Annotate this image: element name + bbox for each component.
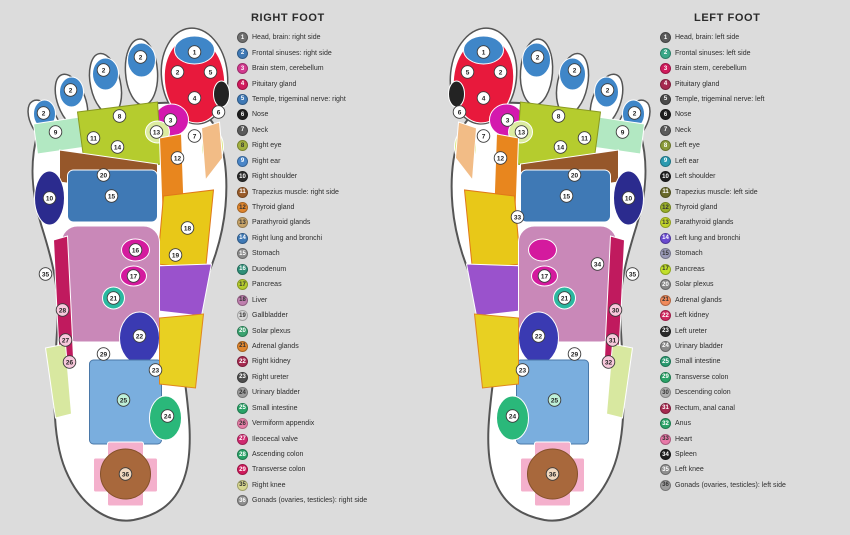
legend-label: Left knee bbox=[671, 466, 704, 473]
foot-marker: 2 bbox=[494, 66, 507, 79]
legend-item: 14 Right lung and bronchi bbox=[237, 231, 437, 246]
legend-item: 21 Adrenal glands bbox=[237, 339, 437, 354]
legend-item: 18 Liver bbox=[237, 292, 437, 307]
legend-swatch: 4 bbox=[660, 79, 671, 90]
legend-swatch: 12 bbox=[237, 202, 248, 213]
legend-item: 29 Transverse colon bbox=[660, 370, 848, 385]
svg-text:25: 25 bbox=[551, 397, 559, 404]
legend-swatch: 5 bbox=[660, 94, 671, 105]
svg-text:16: 16 bbox=[132, 247, 140, 254]
legend-item: 34 Spleen bbox=[660, 447, 848, 462]
svg-text:2: 2 bbox=[573, 67, 577, 74]
foot-marker: 22 bbox=[532, 330, 545, 343]
legend-label: Transverse colon bbox=[248, 466, 305, 473]
legend-swatch: 6 bbox=[660, 109, 671, 120]
legend-label: Solar plexus bbox=[248, 328, 291, 335]
svg-text:14: 14 bbox=[557, 144, 565, 151]
legend-swatch: 30 bbox=[660, 387, 671, 398]
legend-item: 8 Right eye bbox=[237, 138, 437, 153]
legend-label: Gonads (ovaries, testicles): right side bbox=[248, 497, 367, 504]
legend-item: 21 Adrenal glands bbox=[660, 292, 848, 307]
legend-item: 33 Heart bbox=[660, 431, 848, 446]
svg-text:24: 24 bbox=[509, 413, 517, 420]
legend-label: Thyroid gland bbox=[671, 204, 717, 211]
foot-marker: 15 bbox=[560, 190, 573, 203]
legend-swatch: 1 bbox=[660, 32, 671, 43]
legend-label: Frontal sinuses: left side bbox=[671, 50, 750, 57]
legend-swatch: 6 bbox=[237, 109, 248, 120]
legend-swatch: 5 bbox=[237, 94, 248, 105]
legend-swatch: 15 bbox=[660, 248, 671, 259]
svg-text:11: 11 bbox=[90, 135, 97, 142]
left-legend-rows: 1 Head, brain: left side 2 Frontal sinus… bbox=[660, 30, 848, 493]
foot-marker: 36 bbox=[546, 468, 559, 481]
legend-swatch: 36 bbox=[660, 480, 671, 491]
legend-label: Right eye bbox=[248, 142, 282, 149]
legend-item: 4 Pituitary gland bbox=[237, 76, 437, 91]
legend-item: 19 Gallbladder bbox=[237, 308, 437, 323]
legend-label: Stomach bbox=[248, 250, 280, 257]
legend-item: 20 Solar plexus bbox=[660, 277, 848, 292]
svg-text:23: 23 bbox=[152, 367, 160, 374]
legend-item: 3 Brain stem, cerebellum bbox=[237, 61, 437, 76]
foot-marker: 12 bbox=[171, 152, 184, 165]
legend-label: Transverse colon bbox=[671, 374, 728, 381]
svg-text:11: 11 bbox=[581, 135, 588, 142]
svg-text:12: 12 bbox=[497, 155, 505, 162]
legend-swatch: 24 bbox=[237, 387, 248, 398]
legend-swatch: 21 bbox=[660, 295, 671, 306]
svg-text:24: 24 bbox=[164, 413, 172, 420]
legend-label: Anus bbox=[671, 420, 691, 427]
legend-label: Brain stem, cerebellum bbox=[248, 65, 324, 72]
foot-marker: 6 bbox=[453, 106, 466, 119]
foot-marker: 36 bbox=[119, 468, 132, 481]
legend-swatch: 21 bbox=[237, 341, 248, 352]
legend-label: Pituitary gland bbox=[671, 81, 719, 88]
legend-swatch: 35 bbox=[660, 464, 671, 475]
legend-swatch: 33 bbox=[660, 434, 671, 445]
legend-swatch: 13 bbox=[237, 217, 248, 228]
legend-swatch: 29 bbox=[660, 372, 671, 383]
legend-swatch: 22 bbox=[237, 356, 248, 367]
svg-text:30: 30 bbox=[612, 307, 620, 314]
legend-item: 23 Right ureter bbox=[237, 370, 437, 385]
svg-text:8: 8 bbox=[557, 113, 561, 120]
legend-item: 25 Small intestine bbox=[660, 354, 848, 369]
legend-swatch: 9 bbox=[660, 156, 671, 167]
foot-zone bbox=[529, 239, 557, 261]
legend-swatch: 20 bbox=[660, 279, 671, 290]
svg-text:36: 36 bbox=[122, 471, 130, 478]
legend-swatch: 10 bbox=[237, 171, 248, 182]
foot-marker: 10 bbox=[43, 192, 56, 205]
legend-label: Trapezius muscle: right side bbox=[248, 189, 339, 196]
legend-label: Trapezius muscle: left side bbox=[671, 189, 758, 196]
svg-text:26: 26 bbox=[66, 359, 74, 366]
foot-marker: 5 bbox=[204, 66, 217, 79]
svg-text:4: 4 bbox=[482, 95, 486, 102]
legend-label: Stomach bbox=[671, 250, 703, 257]
svg-text:17: 17 bbox=[541, 273, 549, 280]
svg-text:9: 9 bbox=[54, 129, 58, 136]
foot-marker: 14 bbox=[554, 141, 567, 154]
legend-label: Spleen bbox=[671, 451, 697, 458]
legend-label: Small intestine bbox=[671, 358, 721, 365]
svg-text:9: 9 bbox=[621, 129, 625, 136]
foot-marker: 24 bbox=[506, 410, 519, 423]
foot-zone bbox=[465, 190, 521, 270]
legend-label: Solar plexus bbox=[671, 281, 714, 288]
svg-text:36: 36 bbox=[549, 471, 557, 478]
svg-text:2: 2 bbox=[536, 54, 540, 61]
legend-item: 35 Left knee bbox=[660, 462, 848, 477]
foot-marker: 31 bbox=[606, 334, 619, 347]
legend-swatch: 11 bbox=[237, 187, 248, 198]
foot-marker: 21 bbox=[558, 292, 571, 305]
svg-text:15: 15 bbox=[563, 193, 571, 200]
legend-item: 11 Trapezius muscle: right side bbox=[237, 184, 437, 199]
svg-text:3: 3 bbox=[169, 117, 173, 124]
foot-marker: 17 bbox=[127, 270, 140, 283]
foot-marker: 2 bbox=[568, 64, 581, 77]
legend-swatch: 25 bbox=[660, 356, 671, 367]
foot-marker: 1 bbox=[477, 46, 490, 59]
legend-item: 24 Urinary bladder bbox=[237, 385, 437, 400]
foot-marker: 26 bbox=[63, 356, 76, 369]
legend-label: Descending colon bbox=[671, 389, 731, 396]
svg-text:10: 10 bbox=[46, 195, 54, 202]
legend-label: Adrenal glands bbox=[671, 297, 722, 304]
legend-label: Gallbladder bbox=[248, 312, 288, 319]
svg-text:5: 5 bbox=[466, 69, 470, 76]
foot-marker: 14 bbox=[111, 141, 124, 154]
foot-marker: 6 bbox=[212, 106, 225, 119]
foot-marker: 23 bbox=[149, 364, 162, 377]
svg-text:17: 17 bbox=[130, 273, 138, 280]
legend-swatch: 23 bbox=[237, 372, 248, 383]
legend-swatch: 32 bbox=[660, 418, 671, 429]
legend-swatch: 13 bbox=[660, 217, 671, 228]
foot-marker: 3 bbox=[164, 114, 177, 127]
svg-text:23: 23 bbox=[519, 367, 527, 374]
foot-marker: 2 bbox=[601, 84, 614, 97]
legend-label: Liver bbox=[248, 297, 267, 304]
svg-text:2: 2 bbox=[69, 87, 73, 94]
svg-text:14: 14 bbox=[114, 144, 122, 151]
right-legend-rows: 1 Head, brain: right side 2 Frontal sinu… bbox=[237, 30, 437, 509]
legend-item: 9 Left ear bbox=[660, 154, 848, 169]
svg-text:27: 27 bbox=[62, 337, 70, 344]
svg-text:1: 1 bbox=[193, 49, 197, 56]
legend-label: Right lung and bronchi bbox=[248, 235, 322, 242]
legend-swatch: 8 bbox=[237, 140, 248, 151]
foot-marker: 29 bbox=[568, 348, 581, 361]
legend-item: 2 Frontal sinuses: left side bbox=[660, 45, 848, 60]
legend-label: Pancreas bbox=[671, 266, 705, 273]
right-foot-title: RIGHT FOOT bbox=[237, 12, 437, 24]
svg-text:35: 35 bbox=[42, 271, 50, 278]
left-foot-diagram: 1254367222289111312142010151733342122232… bbox=[444, 12, 672, 524]
foot-marker: 8 bbox=[552, 110, 565, 123]
foot-marker: 2 bbox=[37, 107, 50, 120]
svg-text:2: 2 bbox=[42, 110, 46, 117]
legend-label: Nose bbox=[671, 111, 691, 118]
legend-item: 23 Left ureter bbox=[660, 323, 848, 338]
legend-item: 32 Anus bbox=[660, 416, 848, 431]
legend-item: 28 Ascending colon bbox=[237, 447, 437, 462]
svg-text:18: 18 bbox=[184, 225, 192, 232]
legend-item: 7 Neck bbox=[237, 123, 437, 138]
svg-text:21: 21 bbox=[110, 295, 118, 302]
legend-swatch: 3 bbox=[237, 63, 248, 74]
legend-swatch: 2 bbox=[237, 48, 248, 59]
legend-label: Left ear bbox=[671, 158, 699, 165]
svg-text:21: 21 bbox=[561, 295, 569, 302]
svg-text:28: 28 bbox=[59, 307, 67, 314]
legend-item: 31 Rectum, anal canal bbox=[660, 401, 848, 416]
foot-marker: 2 bbox=[97, 64, 110, 77]
left-foot-title: LEFT FOOT bbox=[660, 12, 848, 24]
foot-marker: 20 bbox=[568, 169, 581, 182]
legend-label: Neck bbox=[671, 127, 691, 134]
foot-marker: 10 bbox=[622, 192, 635, 205]
foot-marker: 4 bbox=[477, 92, 490, 105]
foot-zone bbox=[475, 314, 519, 388]
foot-marker: 20 bbox=[97, 169, 110, 182]
foot-marker: 15 bbox=[105, 190, 118, 203]
legend-label: Head, brain: left side bbox=[671, 34, 739, 41]
legend-swatch: 10 bbox=[660, 171, 671, 182]
legend-label: Small intestine bbox=[248, 405, 298, 412]
foot-marker: 13 bbox=[150, 126, 163, 139]
legend-item: 10 Left shoulder bbox=[660, 169, 848, 184]
foot-marker: 11 bbox=[87, 132, 100, 145]
legend-swatch: 1 bbox=[237, 32, 248, 43]
foot-marker: 34 bbox=[591, 258, 604, 271]
legend-item: 29 Transverse colon bbox=[237, 462, 437, 477]
legend-label: Left lung and bronchi bbox=[671, 235, 740, 242]
foot-marker: 17 bbox=[538, 270, 551, 283]
legend-item: 17 Pancreas bbox=[660, 262, 848, 277]
svg-text:2: 2 bbox=[102, 67, 106, 74]
svg-text:19: 19 bbox=[172, 252, 180, 259]
legend-label: Thyroid gland bbox=[248, 204, 294, 211]
legend-label: Right shoulder bbox=[248, 173, 297, 180]
legend-swatch: 29 bbox=[237, 464, 248, 475]
svg-text:1: 1 bbox=[482, 49, 486, 56]
legend-label: Left eye bbox=[671, 142, 700, 149]
legend-item: 13 Parathyroid glands bbox=[660, 215, 848, 230]
legend-swatch: 25 bbox=[237, 403, 248, 414]
legend-label: Left shoulder bbox=[671, 173, 715, 180]
legend-item: 2 Frontal sinuses: right side bbox=[237, 45, 437, 60]
foot-marker: 18 bbox=[181, 222, 194, 235]
legend-item: 11 Trapezius muscle: left side bbox=[660, 184, 848, 199]
svg-text:2: 2 bbox=[606, 87, 610, 94]
legend-item: 22 Left kidney bbox=[660, 308, 848, 323]
legend-item: 5 Temple, trigeminal nerve: left bbox=[660, 92, 848, 107]
svg-text:6: 6 bbox=[458, 109, 462, 116]
svg-text:31: 31 bbox=[609, 337, 617, 344]
legend-swatch: 27 bbox=[237, 434, 248, 445]
foot-marker: 7 bbox=[477, 130, 490, 143]
legend-swatch: 26 bbox=[237, 418, 248, 429]
legend-swatch: 9 bbox=[237, 156, 248, 167]
svg-text:7: 7 bbox=[482, 133, 486, 140]
legend-label: Heart bbox=[671, 436, 692, 443]
legend-label: Duodenum bbox=[248, 266, 286, 273]
svg-text:29: 29 bbox=[100, 351, 108, 358]
legend-label: Neck bbox=[248, 127, 268, 134]
legend-item: 7 Neck bbox=[660, 123, 848, 138]
foot-marker: 30 bbox=[609, 304, 622, 317]
foot-marker: 2 bbox=[531, 51, 544, 64]
foot-marker: 22 bbox=[133, 330, 146, 343]
foot-marker: 5 bbox=[461, 66, 474, 79]
legend-item: 27 Ileocecal valve bbox=[237, 431, 437, 446]
legend-label: Right kidney bbox=[248, 358, 291, 365]
svg-text:2: 2 bbox=[176, 69, 180, 76]
foot-marker: 1 bbox=[188, 46, 201, 59]
svg-text:4: 4 bbox=[193, 95, 197, 102]
svg-text:7: 7 bbox=[193, 133, 197, 140]
legend-swatch: 7 bbox=[660, 125, 671, 136]
foot-marker: 33 bbox=[511, 211, 524, 224]
legend-item: 9 Right ear bbox=[237, 154, 437, 169]
svg-text:2: 2 bbox=[499, 69, 503, 76]
svg-text:6: 6 bbox=[217, 109, 221, 116]
legend-swatch: 23 bbox=[660, 326, 671, 337]
svg-text:8: 8 bbox=[118, 113, 122, 120]
legend-swatch: 22 bbox=[660, 310, 671, 321]
foot-marker: 35 bbox=[626, 268, 639, 281]
foot-marker: 9 bbox=[49, 126, 62, 139]
foot-marker: 16 bbox=[129, 244, 142, 257]
legend-item: 30 Descending colon bbox=[660, 385, 848, 400]
foot-marker: 23 bbox=[516, 364, 529, 377]
svg-text:13: 13 bbox=[153, 129, 161, 136]
foot-marker: 2 bbox=[628, 107, 641, 120]
svg-text:22: 22 bbox=[136, 333, 144, 340]
legend-label: Parathyroid glands bbox=[248, 219, 310, 226]
svg-text:13: 13 bbox=[518, 129, 526, 136]
legend-label: Ascending colon bbox=[248, 451, 303, 458]
legend-label: Pituitary gland bbox=[248, 81, 296, 88]
legend-label: Right ureter bbox=[248, 374, 289, 381]
foot-marker: 2 bbox=[171, 66, 184, 79]
legend-swatch: 14 bbox=[660, 233, 671, 244]
legend-item: 6 Nose bbox=[237, 107, 437, 122]
foot-marker: 13 bbox=[515, 126, 528, 139]
svg-text:3: 3 bbox=[506, 117, 510, 124]
legend-swatch: 15 bbox=[237, 248, 248, 259]
legend-label: Parathyroid glands bbox=[671, 219, 733, 226]
foot-marker: 21 bbox=[107, 292, 120, 305]
legend-item: 20 Solar plexus bbox=[237, 323, 437, 338]
right-foot-diagram: 1254367222289111312142010151617181921222… bbox=[6, 12, 234, 524]
legend-swatch: 19 bbox=[237, 310, 248, 321]
foot-marker: 7 bbox=[188, 130, 201, 143]
foot-marker: 2 bbox=[64, 84, 77, 97]
foot-zone bbox=[160, 314, 204, 388]
legend-swatch: 31 bbox=[660, 403, 671, 414]
legend-swatch: 14 bbox=[237, 233, 248, 244]
legend-label: Left ureter bbox=[671, 328, 707, 335]
legend-swatch: 16 bbox=[237, 264, 248, 275]
foot-marker: 8 bbox=[113, 110, 126, 123]
legend-item: 5 Temple, trigeminal nerve: right bbox=[237, 92, 437, 107]
legend-item: 12 Thyroid gland bbox=[237, 200, 437, 215]
legend-label: Left kidney bbox=[671, 312, 709, 319]
legend-swatch: 35 bbox=[237, 480, 248, 491]
foot-zone bbox=[449, 81, 465, 107]
svg-text:22: 22 bbox=[535, 333, 543, 340]
svg-text:34: 34 bbox=[594, 261, 602, 268]
legend-item: 22 Right kidney bbox=[237, 354, 437, 369]
legend-item: 26 Vermiform appendix bbox=[237, 416, 437, 431]
legend-item: 8 Left eye bbox=[660, 138, 848, 153]
foot-marker: 28 bbox=[56, 304, 69, 317]
legend-swatch: 12 bbox=[660, 202, 671, 213]
legend-label: Urinary bladder bbox=[248, 389, 300, 396]
legend-item: 36 Gonads (ovaries, testicles): left sid… bbox=[660, 478, 848, 493]
legend-item: 14 Left lung and bronchi bbox=[660, 231, 848, 246]
legend-label: Nose bbox=[248, 111, 268, 118]
legend-label: Urinary bladder bbox=[671, 343, 723, 350]
legend-swatch: 18 bbox=[237, 295, 248, 306]
legend-label: Right ear bbox=[248, 158, 280, 165]
legend-swatch: 3 bbox=[660, 63, 671, 74]
legend-label: Pancreas bbox=[248, 281, 282, 288]
legend-label: Adrenal glands bbox=[248, 343, 299, 350]
svg-text:15: 15 bbox=[108, 193, 116, 200]
legend-item: 4 Pituitary gland bbox=[660, 76, 848, 91]
svg-text:2: 2 bbox=[633, 110, 637, 117]
foot-marker: 25 bbox=[548, 394, 561, 407]
svg-text:2: 2 bbox=[139, 54, 143, 61]
svg-text:32: 32 bbox=[605, 359, 613, 366]
reflexology-chart: 1254367222289111312142010151617181921222… bbox=[0, 0, 850, 535]
legend-label: Gonads (ovaries, testicles): left side bbox=[671, 482, 786, 489]
legend-label: Rectum, anal canal bbox=[671, 405, 735, 412]
foot-marker: 24 bbox=[161, 410, 174, 423]
legend-item: 10 Right shoulder bbox=[237, 169, 437, 184]
legend-swatch: 36 bbox=[237, 495, 248, 506]
legend-label: Frontal sinuses: right side bbox=[248, 50, 332, 57]
foot-marker: 3 bbox=[501, 114, 514, 127]
legend-item: 1 Head, brain: right side bbox=[237, 30, 437, 45]
legend-swatch: 20 bbox=[237, 326, 248, 337]
svg-text:20: 20 bbox=[100, 172, 108, 179]
legend-swatch: 11 bbox=[660, 187, 671, 198]
legend-label: Temple, trigeminal nerve: left bbox=[671, 96, 764, 103]
foot-marker: 19 bbox=[169, 249, 182, 262]
foot-marker: 4 bbox=[188, 92, 201, 105]
legend-label: Ileocecal valve bbox=[248, 436, 298, 443]
legend-label: Vermiform appendix bbox=[248, 420, 314, 427]
foot-marker: 29 bbox=[97, 348, 110, 361]
svg-text:25: 25 bbox=[120, 397, 128, 404]
legend-swatch: 7 bbox=[237, 125, 248, 136]
legend-swatch: 4 bbox=[237, 79, 248, 90]
legend-item: 36 Gonads (ovaries, testicles): right si… bbox=[237, 493, 437, 508]
foot-marker: 27 bbox=[59, 334, 72, 347]
svg-text:10: 10 bbox=[625, 195, 633, 202]
right-foot-legend: RIGHT FOOT 1 Head, brain: right side 2 F… bbox=[237, 10, 437, 509]
legend-item: 24 Urinary bladder bbox=[660, 339, 848, 354]
svg-text:12: 12 bbox=[174, 155, 182, 162]
